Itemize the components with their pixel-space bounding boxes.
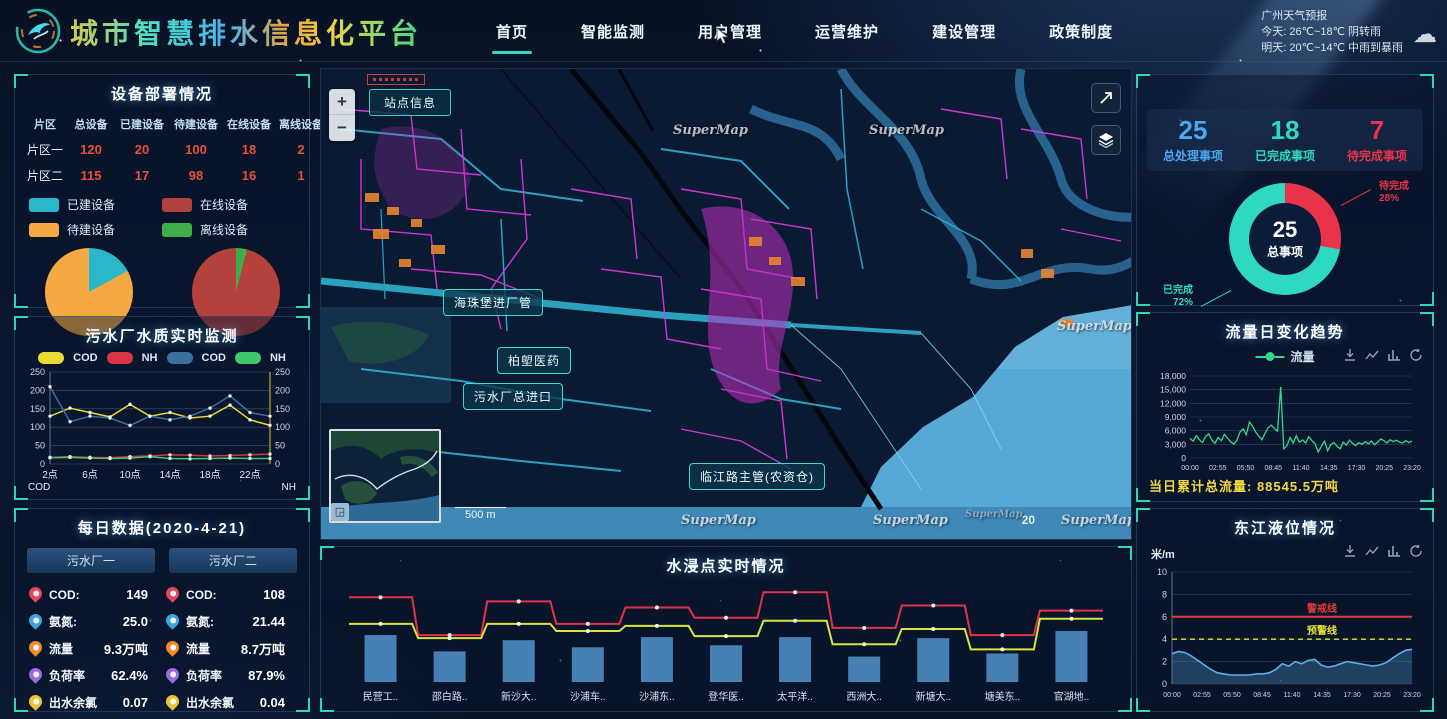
water-quality-panel: 污水厂水质实时监测 COD NH COD NH 0050501001001501… <box>14 316 310 500</box>
supermap-watermark: SuperMap <box>873 513 948 528</box>
daily-row-nh: 氨氮:25.0 氨氮:21.44 <box>25 608 299 635</box>
legend-swatch <box>162 223 192 237</box>
bar-chart-icon[interactable] <box>1387 348 1401 362</box>
download-icon[interactable] <box>1343 544 1357 558</box>
axis-tick-label: 14:35 <box>1320 465 1338 472</box>
device-table: 片区 总设备 已建设备 待建设备 在线设备 离线设备 片区一 120 20 10… <box>23 116 301 184</box>
daily-row-flow: 流量9.3万吨 流量8.7万吨 <box>25 635 299 662</box>
axis-tick-label: 3,000 <box>1165 439 1187 449</box>
axis-tick-label: 11:40 <box>1293 465 1310 472</box>
axis-tick-label: 11:40 <box>1284 692 1301 699</box>
legend-item: 待建设备 <box>29 221 162 238</box>
axis-tick-label: 12,000 <box>1160 398 1186 408</box>
axis-tick-label: 0 <box>1162 679 1167 689</box>
flood-bar <box>710 645 742 682</box>
supermap-watermark: SuperMap <box>965 509 1023 520</box>
axis-tick-label: 西洲大.. <box>846 690 882 703</box>
refresh-icon[interactable] <box>1409 348 1423 362</box>
device-table-header: 总设备 <box>67 116 115 132</box>
donut-leader-line <box>1201 290 1231 307</box>
axis-tick-label: 沙浦东.. <box>639 690 675 703</box>
device-cell: 98 <box>169 168 223 183</box>
map-label-pharma[interactable]: 柏塱医药 <box>497 347 571 374</box>
supermap-watermark: SuperMap <box>1061 513 1132 528</box>
station-info-button[interactable]: 站点信息 <box>369 89 451 116</box>
device-cell: 18 <box>223 142 275 157</box>
weather-today: 今天: 26℃~18℃ 阴转雨 <box>1261 24 1403 40</box>
device-cell: 115 <box>67 168 115 183</box>
map-label-pipe-inlet[interactable]: 海珠堡进厂管 <box>443 289 543 316</box>
map-scale-bar: 500 m <box>455 507 506 521</box>
stat-completed-tasks: 18 已完成事项 <box>1239 117 1331 164</box>
expand-icon <box>1098 90 1114 106</box>
flood-bar <box>434 651 466 682</box>
axis-tick-label: 9,000 <box>1165 412 1187 422</box>
flood-step-line <box>349 592 1103 635</box>
legend-swatch <box>29 198 59 212</box>
daily-data-panel: 每日数据(2020-4-21) 污水厂一 污水厂二 COD:149 COD:10… <box>14 508 310 712</box>
task-donut-chart: 25 总事项 待完成 28% 已完成 72% <box>1137 175 1433 305</box>
map-zoom-level: 20 <box>1022 513 1035 527</box>
axis-tick-label: 6,000 <box>1165 426 1187 436</box>
flood-panel-title: 水浸点实时情况 <box>321 547 1131 576</box>
axis-tick-label: 2 <box>1162 657 1167 667</box>
axis-tick-label: 200 <box>275 385 290 395</box>
flood-bar <box>848 657 880 683</box>
task-stats-panel: 25 总处理事项 18 已完成事项 7 待完成事项 25 总事项 待完成 28% <box>1136 74 1434 306</box>
download-icon[interactable] <box>1343 348 1357 362</box>
axis-tick-label: 登华医.. <box>708 690 744 703</box>
axis-tick-label: 塘美东.. <box>985 690 1021 703</box>
nav-item-users[interactable]: 用户管理 <box>696 15 764 48</box>
axis-tick-label: 14点 <box>159 469 180 481</box>
flood-step-line <box>349 619 1103 650</box>
axis-tick-label: 23:20 <box>1403 465 1421 472</box>
supermap-watermark: SuperMap <box>681 513 756 528</box>
daily-row-cod: COD:149 COD:108 <box>25 581 299 608</box>
refresh-icon[interactable] <box>1409 544 1423 558</box>
axis-tick-label: 4 <box>1162 634 1167 644</box>
axis-tick-label: 50 <box>35 441 45 451</box>
legend-swatch <box>167 352 193 364</box>
level-area-chart: 1086420警戒线预警线00:0002:5505:5008:4511:4014… <box>1144 564 1426 714</box>
legend-item: 离线设备 <box>162 221 295 238</box>
donut-ring: 25 总事项 <box>1229 183 1341 295</box>
water-quality-title: 污水厂水质实时监测 <box>15 317 309 346</box>
device-table-header: 待建设备 <box>169 116 223 132</box>
flood-bar <box>917 638 949 682</box>
zoom-in-button[interactable]: + <box>329 89 355 115</box>
flood-bar <box>641 637 673 682</box>
device-row-name: 片区一 <box>23 141 67 158</box>
device-row-name: 片区二 <box>23 167 67 184</box>
axis-tick-label: COD <box>28 482 50 493</box>
legend-label: 流量 <box>1290 348 1314 365</box>
flood-bar <box>503 640 535 682</box>
device-panel-title: 设备部署情况 <box>15 75 309 104</box>
axis-tick-label: 14:35 <box>1313 692 1331 699</box>
map-attribution <box>367 74 425 85</box>
flood-bar <box>779 637 811 682</box>
daily-row-load: 负荷率62.4% 负荷率87.9% <box>25 662 299 689</box>
daily-row-chlorine: 出水余氯0.07 出水余氯0.04 <box>25 689 299 716</box>
legend-label: 离线设备 <box>200 221 248 238</box>
device-cell: 17 <box>115 168 169 183</box>
legend-label: NH <box>142 352 158 364</box>
axis-tick-label: 100 <box>30 422 45 432</box>
legend-label: COD <box>202 352 226 364</box>
axis-tick-label: 6 <box>1162 612 1167 622</box>
axis-tick-label: 100 <box>275 422 290 432</box>
reference-line-label: 预警线 <box>1307 624 1337 637</box>
series-line <box>50 387 270 426</box>
daily-data-rows: COD:149 COD:108 氨氮:25.0 氨氮:21.44 流量9.3万吨… <box>25 581 299 716</box>
axis-tick-label: 太平洋.. <box>777 690 813 703</box>
legend-swatch <box>162 198 192 212</box>
flood-points-chart: 民营工..邵白路..新沙大..沙浦车..沙浦东..登华医..太平洋..西洲大..… <box>332 576 1120 714</box>
series-line <box>50 404 270 425</box>
location-pin-blue-icon <box>26 611 44 629</box>
axis-tick-label: 20:25 <box>1373 692 1391 699</box>
plant-1-header: 污水厂一 <box>27 548 155 573</box>
stat-pending-tasks: 7 待完成事项 <box>1331 117 1423 164</box>
axis-tick-label: 08:45 <box>1253 692 1271 699</box>
axis-tick-label: 23:20 <box>1403 692 1421 699</box>
legend-swatch <box>235 352 261 364</box>
map-label-linjiang-main[interactable]: 临江路主管(农资仓) <box>689 463 825 490</box>
river-level-panel: 东江液位情况 米/m 1086420警戒线预警线00:0002:5505:500… <box>1136 508 1434 712</box>
weather-widget: 广州天气预报 今天: 26℃~18℃ 阴转雨 明天: 20℃~14℃ 中雨到暴雨 <box>1261 8 1403 56</box>
device-table-header: 在线设备 <box>223 116 275 132</box>
axis-tick-label: 22点 <box>239 469 260 481</box>
supermap-watermark: SuperMap <box>1057 319 1132 334</box>
supermap-watermark: SuperMap <box>673 123 748 138</box>
flow-legend: 流量 <box>1255 348 1314 365</box>
map-zoom-control: + − <box>329 89 355 141</box>
legend-swatch <box>38 352 64 364</box>
nav-item-operations[interactable]: 运营维护 <box>813 15 881 48</box>
axis-tick-label: 150 <box>275 404 290 414</box>
flood-bar <box>986 653 1018 682</box>
bar-chart-icon[interactable] <box>1387 544 1401 558</box>
legend-label: 在线设备 <box>200 196 248 213</box>
axis-tick-label: 0 <box>1181 453 1186 463</box>
axis-tick-label: 02:55 <box>1209 465 1227 472</box>
axis-tick-label: 08:45 <box>1264 465 1282 472</box>
axis-tick-label: 17:30 <box>1348 465 1366 472</box>
reference-line-label: 警戒线 <box>1306 602 1337 615</box>
location-pin-red-icon <box>163 584 181 602</box>
axis-tick-label: 18,000 <box>1160 371 1186 381</box>
chart-toolbox <box>1343 544 1423 558</box>
location-pin-orange-icon <box>26 638 44 656</box>
axis-tick-label: 20:25 <box>1375 465 1393 472</box>
layers-button[interactable] <box>1091 125 1121 155</box>
flood-bar <box>572 647 604 682</box>
location-pin-purple-icon <box>26 665 44 683</box>
axis-tick-label: 17:30 <box>1343 692 1361 699</box>
legend-label: 待建设备 <box>67 221 115 238</box>
axis-tick-label: 15,000 <box>1160 385 1186 395</box>
axis-tick-label: 0 <box>40 459 45 469</box>
fullscreen-button[interactable] <box>1091 83 1121 113</box>
dashboard-root: 城市智慧排水信息化平台 首页 智能监测 用户管理 运营维护 建设管理 政策制度 … <box>0 0 1447 719</box>
axis-tick-label: 10 <box>1157 567 1167 577</box>
axis-tick-label: 02:55 <box>1193 692 1211 699</box>
device-cell: 20 <box>115 142 169 157</box>
device-cell: 100 <box>169 142 223 157</box>
legend-item: 在线设备 <box>162 196 295 213</box>
flow-line-chart: 18,00015,00012,0009,0006,0003,000000:000… <box>1144 370 1426 482</box>
axis-tick-label: 民营工.. <box>363 690 399 703</box>
level-panel-title: 东江液位情况 <box>1137 509 1433 538</box>
legend-swatch <box>29 223 59 237</box>
location-pin-yellow-icon <box>163 692 181 710</box>
donut-center: 25 总事项 <box>1249 203 1321 275</box>
flow-total-footer: 当日累计总流量: 88545.5万吨 <box>1149 476 1339 495</box>
axis-tick-label: 8 <box>1162 589 1167 599</box>
map-label-plant-inlet[interactable]: 污水厂总进口 <box>463 383 563 410</box>
weather-tomorrow: 明天: 20℃~14℃ 中雨到暴雨 <box>1261 40 1403 56</box>
axis-tick-label: 05:50 <box>1237 465 1255 472</box>
nav-item-monitoring[interactable]: 智能监测 <box>579 15 647 48</box>
axis-tick-label: 150 <box>30 404 45 414</box>
line-chart-icon[interactable] <box>1365 348 1379 362</box>
pipe-network-map[interactable]: + − 站点信息 海珠堡进厂管 柏塱医药 污水厂总进口 临江路主管(农资仓) <box>320 68 1132 540</box>
flow-series-line <box>1190 387 1412 452</box>
device-cell: 16 <box>223 168 275 183</box>
axis-tick-label: 250 <box>275 367 290 377</box>
water-quality-line-chart: 0050501001001501502002002502502点6点10点14点… <box>18 366 306 494</box>
chart-toolbox <box>1343 348 1423 362</box>
app-title: 城市智慧排水信息化平台 <box>70 12 422 52</box>
zoom-out-button[interactable]: − <box>329 115 355 141</box>
flow-trend-panel: 流量日变化趋势 流量 18,00015,00012,0009,0006,0003… <box>1136 312 1434 502</box>
location-pin-yellow-icon <box>26 692 44 710</box>
mouse-cursor-icon <box>716 27 730 45</box>
legend-label: 已建设备 <box>67 196 115 213</box>
supermap-watermark: SuperMap <box>869 123 944 138</box>
header-bar: 城市智慧排水信息化平台 首页 智能监测 用户管理 运营维护 建设管理 政策制度 … <box>0 0 1447 62</box>
flow-panel-title: 流量日变化趋势 <box>1137 313 1433 342</box>
axis-tick-label: 50 <box>275 441 285 451</box>
water-quality-legend: COD NH COD NH <box>15 352 309 364</box>
donut-annotation-completed: 已完成 72% <box>1163 285 1193 309</box>
level-y-unit: 米/m <box>1151 546 1175 562</box>
nav-item-construction[interactable]: 建设管理 <box>930 15 998 48</box>
minimap-collapse-button[interactable]: ◲ <box>331 503 349 521</box>
axis-tick-label: 新沙大.. <box>501 690 537 703</box>
legend-label: COD <box>73 352 97 364</box>
device-table-header: 已建设备 <box>115 116 169 132</box>
line-chart-icon[interactable] <box>1365 544 1379 558</box>
daily-data-title: 每日数据(2020-4-21) <box>15 509 309 538</box>
axis-tick-label: 2点 <box>42 469 58 481</box>
main-nav: 首页 智能监测 用户管理 运营维护 建设管理 政策制度 <box>494 0 1115 62</box>
device-cell: 120 <box>67 142 115 157</box>
location-pin-blue-icon <box>163 611 181 629</box>
axis-tick-label: 10点 <box>119 469 140 481</box>
axis-tick-label: NH <box>282 482 296 493</box>
axis-tick-label: 250 <box>30 367 45 377</box>
nav-item-home[interactable]: 首页 <box>494 15 530 48</box>
location-pin-red-icon <box>26 584 44 602</box>
donut-annotation-pending: 待完成 28% <box>1379 181 1409 205</box>
axis-tick-label: 0 <box>275 459 280 469</box>
flood-points-panel: 水浸点实时情况 民营工..邵白路..新沙大..沙浦车..沙浦东..登华医..太平… <box>320 546 1132 712</box>
axis-tick-label: 新塘大.. <box>915 690 951 703</box>
device-deployment-panel: 设备部署情况 片区 总设备 已建设备 待建设备 在线设备 离线设备 片区一 12… <box>14 74 310 308</box>
axis-tick-label: 沙浦车.. <box>570 690 606 703</box>
app-logo-icon <box>14 7 62 55</box>
legend-item: 已建设备 <box>29 196 162 213</box>
axis-tick-label: 邵白路.. <box>432 690 468 703</box>
location-pin-orange-icon <box>163 638 181 656</box>
task-stats-strip: 25 总处理事项 18 已完成事项 7 待完成事项 <box>1147 109 1423 171</box>
cloud-icon: ☁ <box>1413 20 1437 49</box>
legend-label: NH <box>270 352 286 364</box>
axis-tick-label: 官湖地.. <box>1054 690 1090 703</box>
device-legend: 已建设备 在线设备 待建设备 离线设备 <box>29 196 295 238</box>
plant-2-header: 污水厂二 <box>169 548 297 573</box>
location-pin-purple-icon <box>163 665 181 683</box>
axis-tick-label: 6点 <box>82 469 98 481</box>
axis-tick-label: 00:00 <box>1163 692 1181 699</box>
flow-series-marker <box>1255 352 1284 361</box>
weather-city: 广州天气预报 <box>1261 8 1403 24</box>
axis-tick-label: 05:50 <box>1223 692 1241 699</box>
axis-tick-label: 200 <box>30 385 45 395</box>
axis-tick-label: 18点 <box>199 469 220 481</box>
layers-icon <box>1097 131 1115 149</box>
flood-bar <box>365 635 397 682</box>
donut-leader-line <box>1341 189 1371 206</box>
stat-total-tasks: 25 总处理事项 <box>1147 117 1239 164</box>
axis-tick-label: 00:00 <box>1181 465 1199 472</box>
device-table-header: 片区 <box>23 116 67 132</box>
flood-bar <box>1055 631 1087 682</box>
legend-swatch <box>107 352 133 364</box>
nav-item-policy[interactable]: 政策制度 <box>1047 15 1115 48</box>
